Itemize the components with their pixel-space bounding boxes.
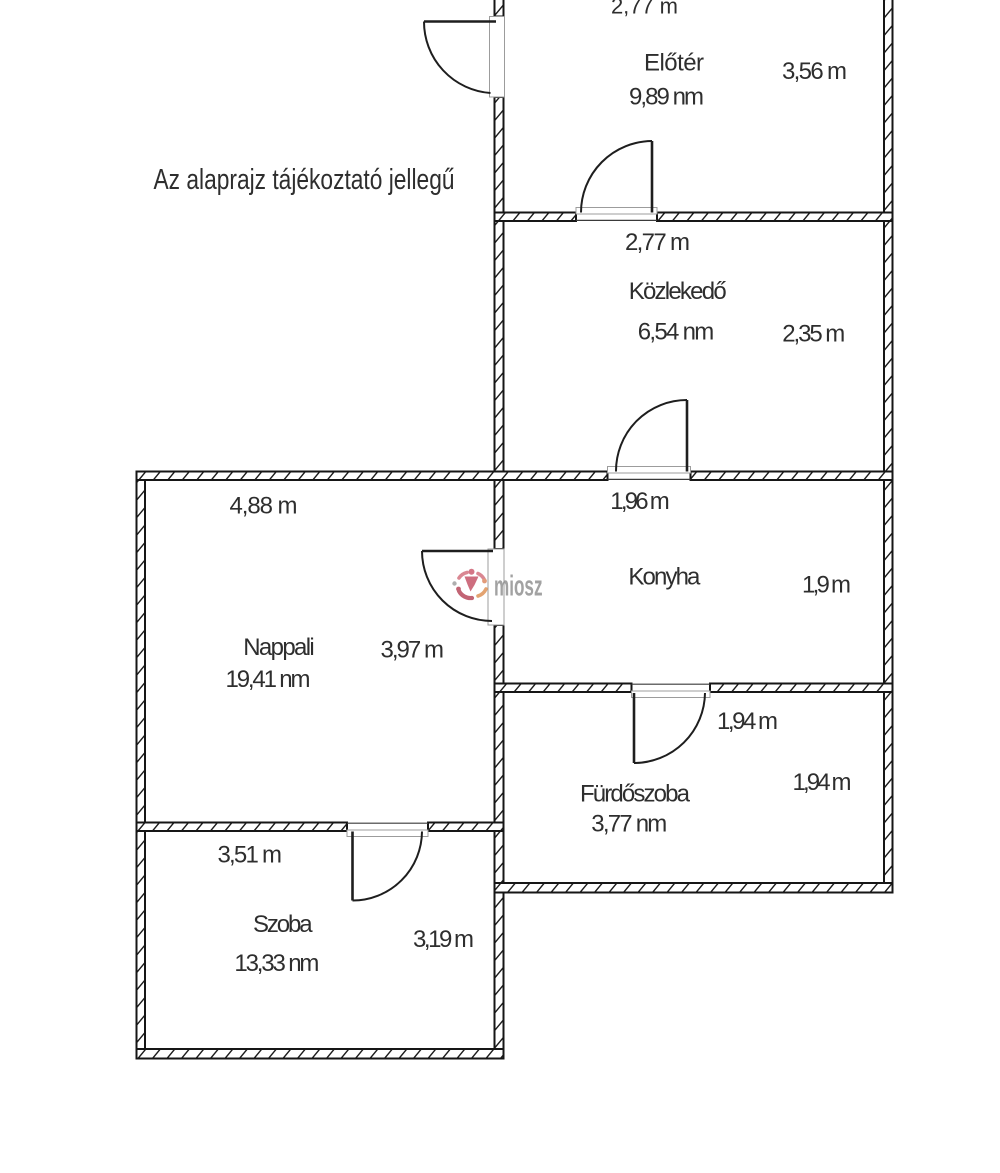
svg-text:Előtér: Előtér <box>644 50 704 77</box>
svg-text:3,51 m: 3,51 m <box>217 841 282 868</box>
svg-text:3,77 nm: 3,77 nm <box>591 811 667 838</box>
svg-text:Közlekedő: Közlekedő <box>629 278 727 305</box>
svg-text:miosz: miosz <box>494 571 543 603</box>
svg-text:Szoba: Szoba <box>253 911 313 938</box>
svg-text:19,41 nm: 19,41 nm <box>226 666 311 693</box>
svg-text:13,33 nm: 13,33 nm <box>234 950 319 977</box>
svg-text:Nappali: Nappali <box>243 634 315 661</box>
svg-text:1,9 m: 1,9 m <box>802 572 851 599</box>
svg-text:4,88 m: 4,88 m <box>230 493 298 520</box>
svg-text:1,94 m: 1,94 m <box>793 769 852 796</box>
svg-text:6,54 nm: 6,54 nm <box>638 319 715 346</box>
svg-text:Konyha: Konyha <box>628 564 701 591</box>
svg-text:3,19 m: 3,19 m <box>413 926 474 953</box>
svg-text:9,89 nm: 9,89 nm <box>629 84 704 111</box>
svg-text:2,35 m: 2,35 m <box>782 320 845 347</box>
svg-text:1,96 m: 1,96 m <box>610 488 670 515</box>
svg-text:3,97 m: 3,97 m <box>380 637 444 664</box>
svg-text:2,77 m: 2,77 m <box>611 0 678 19</box>
svg-text:2,77 m: 2,77 m <box>625 229 690 256</box>
svg-text:Az alaprajz tájékoztató jelleg: Az alaprajz tájékoztató jellegű <box>154 164 455 196</box>
svg-text:Fürdőszoba: Fürdőszoba <box>580 780 691 807</box>
svg-text:1,94 m: 1,94 m <box>717 708 778 735</box>
svg-text:3,56 m: 3,56 m <box>782 58 847 85</box>
